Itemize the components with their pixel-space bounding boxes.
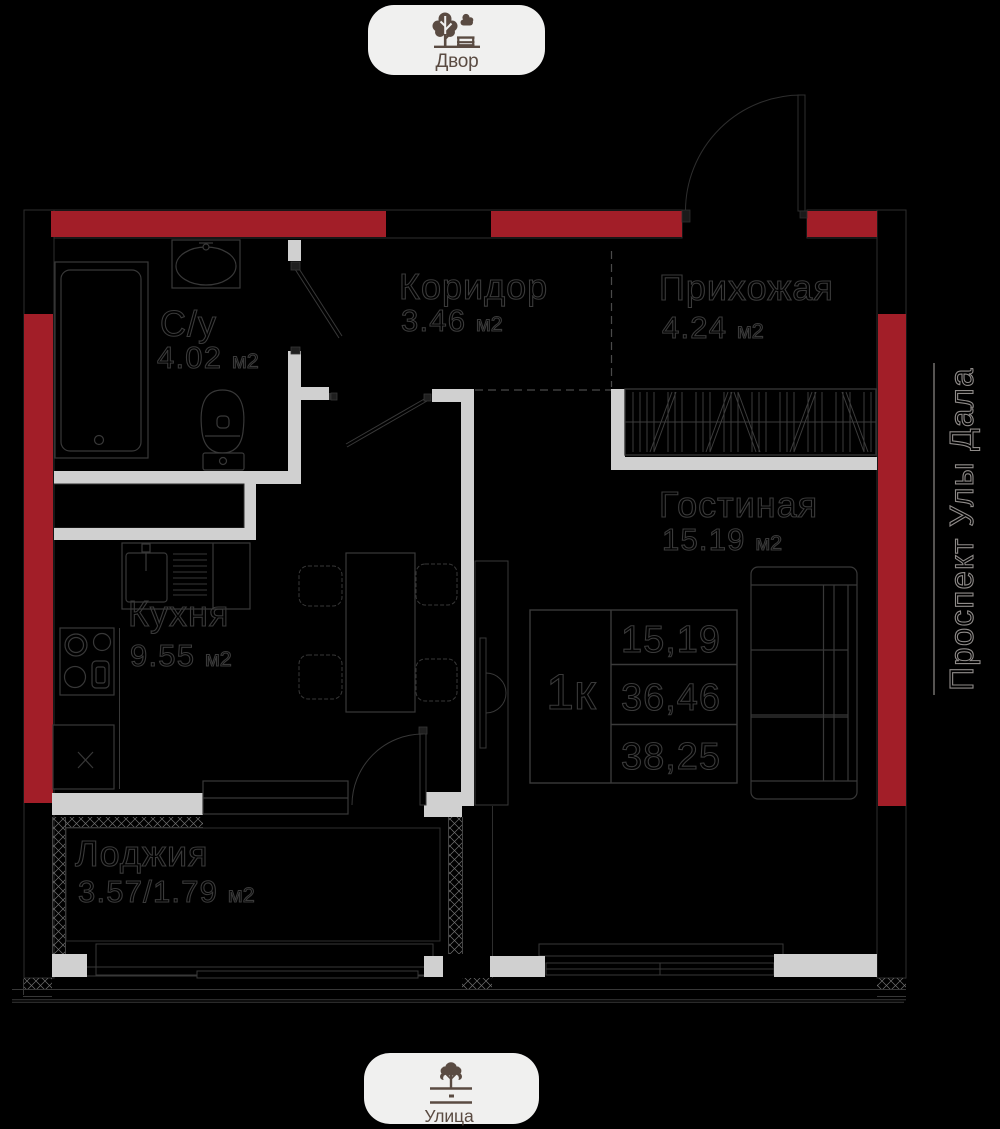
- svg-text:36,46: 36,46: [621, 677, 721, 719]
- svg-text:С/у: С/у: [160, 303, 217, 344]
- svg-text:Гостиная: Гостиная: [659, 484, 818, 525]
- svg-text:1к: 1к: [546, 664, 597, 720]
- svg-text:Кухня: Кухня: [128, 593, 229, 634]
- svg-text:Улица: Улица: [424, 1106, 474, 1126]
- svg-text:15,19: 15,19: [621, 619, 721, 661]
- svg-text:Лоджия: Лоджия: [75, 833, 209, 874]
- svg-text:38,25: 38,25: [621, 736, 721, 778]
- svg-text:Проспект Улы Дала: Проспект Улы Дала: [943, 367, 980, 691]
- svg-text:Двор: Двор: [435, 51, 478, 72]
- svg-text:Прихожая: Прихожая: [659, 267, 834, 308]
- svg-text:Коридор: Коридор: [399, 266, 548, 307]
